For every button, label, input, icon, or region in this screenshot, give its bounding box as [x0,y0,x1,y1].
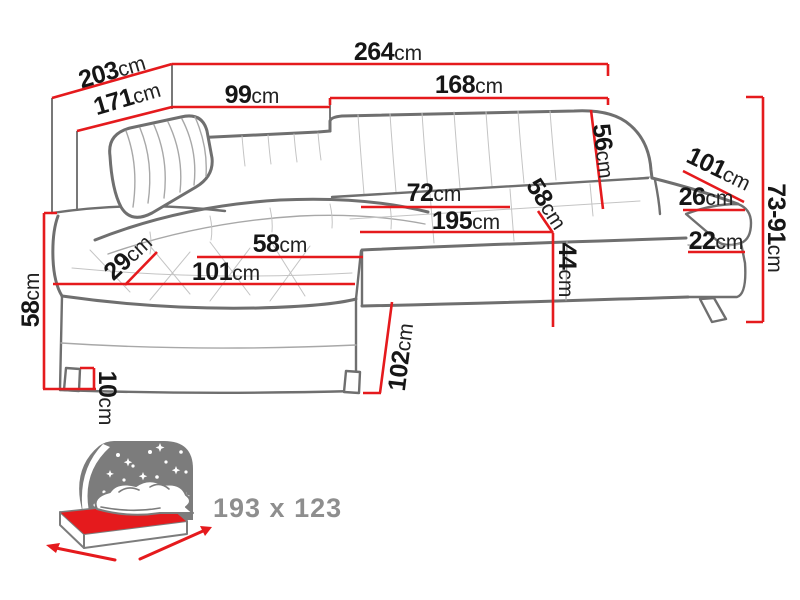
chaise-body [53,216,361,393]
dim-line-side-height [43,213,96,389]
dim-line-height-range [746,97,763,322]
dim-label-back-left-width: 99cm [225,81,280,109]
sofa-dimension-diagram: 264cm 203cm 171cm 99cm 168cm 56cm 101cm … [0,0,800,600]
dim-label-leg-height: 10cm [93,371,121,426]
main-base [362,238,688,306]
right-leg [700,298,726,322]
dim-label-armrest-width: 26cm [679,183,734,211]
dim-label-back-right-width: 168cm [435,71,503,99]
dim-label-side-height: 58cm [17,273,45,328]
dim-label-backrest-height: 56cm [587,122,621,180]
dimension-diagram-page: 264cm 203cm 171cm 99cm 168cm 56cm 101cm … [0,0,800,600]
dim-label-front-edge-height: 22cm [689,227,744,255]
headrest-pillow [110,116,213,217]
dim-line-leg-height [80,368,94,389]
dim-label-height-range: 73-91cm [762,183,790,272]
dim-label-total-width: 264cm [354,38,422,66]
sleeping-function-icon: 193 x 123 [46,441,342,560]
bed-size-label: 193 x 123 [213,493,342,523]
dim-label-seat-length: 195cm [432,207,500,235]
dim-label-seat-height: 44cm [553,243,581,298]
dim-label-seat-back-width: 72cm [407,179,462,207]
dim-label-chaise-seat-length: 101cm [192,258,260,286]
dim-label-chaise-seat-width: 58cm [253,230,308,258]
dim-line-back-right-width [330,98,608,105]
